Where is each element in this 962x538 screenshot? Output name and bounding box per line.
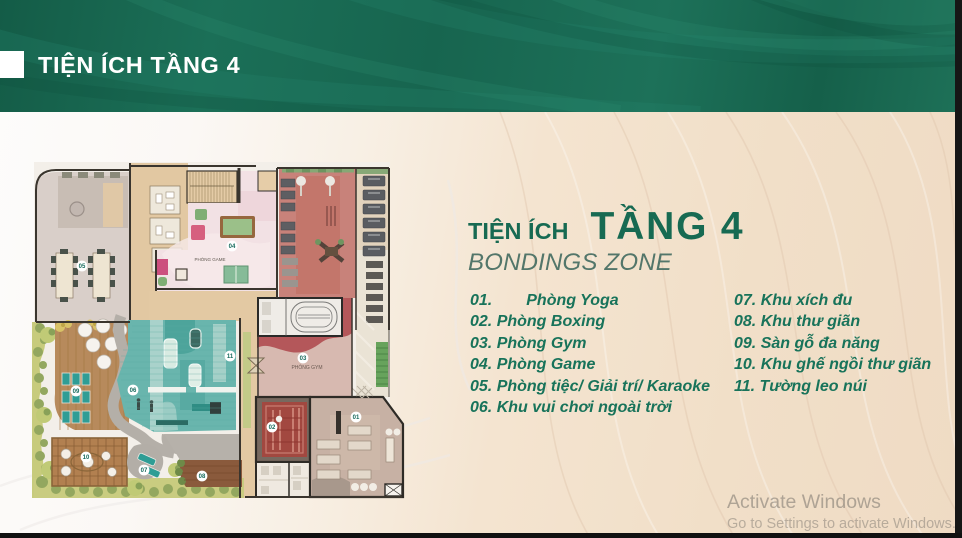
svg-text:07: 07 xyxy=(141,468,148,474)
svg-text:02: 02 xyxy=(269,425,276,431)
svg-text:09: 09 xyxy=(73,389,80,395)
svg-text:08: 08 xyxy=(199,474,206,480)
svg-text:06: 06 xyxy=(130,388,137,394)
svg-text:03: 03 xyxy=(300,356,307,362)
svg-text:10: 10 xyxy=(83,455,90,461)
svg-text:11: 11 xyxy=(227,354,234,360)
svg-text:01: 01 xyxy=(353,415,360,421)
svg-text:05: 05 xyxy=(79,264,86,270)
svg-text:PHÒNG GAME: PHÒNG GAME xyxy=(194,256,225,262)
svg-text:04: 04 xyxy=(229,244,236,250)
svg-text:PHÒNG GYM: PHÒNG GYM xyxy=(291,364,322,371)
